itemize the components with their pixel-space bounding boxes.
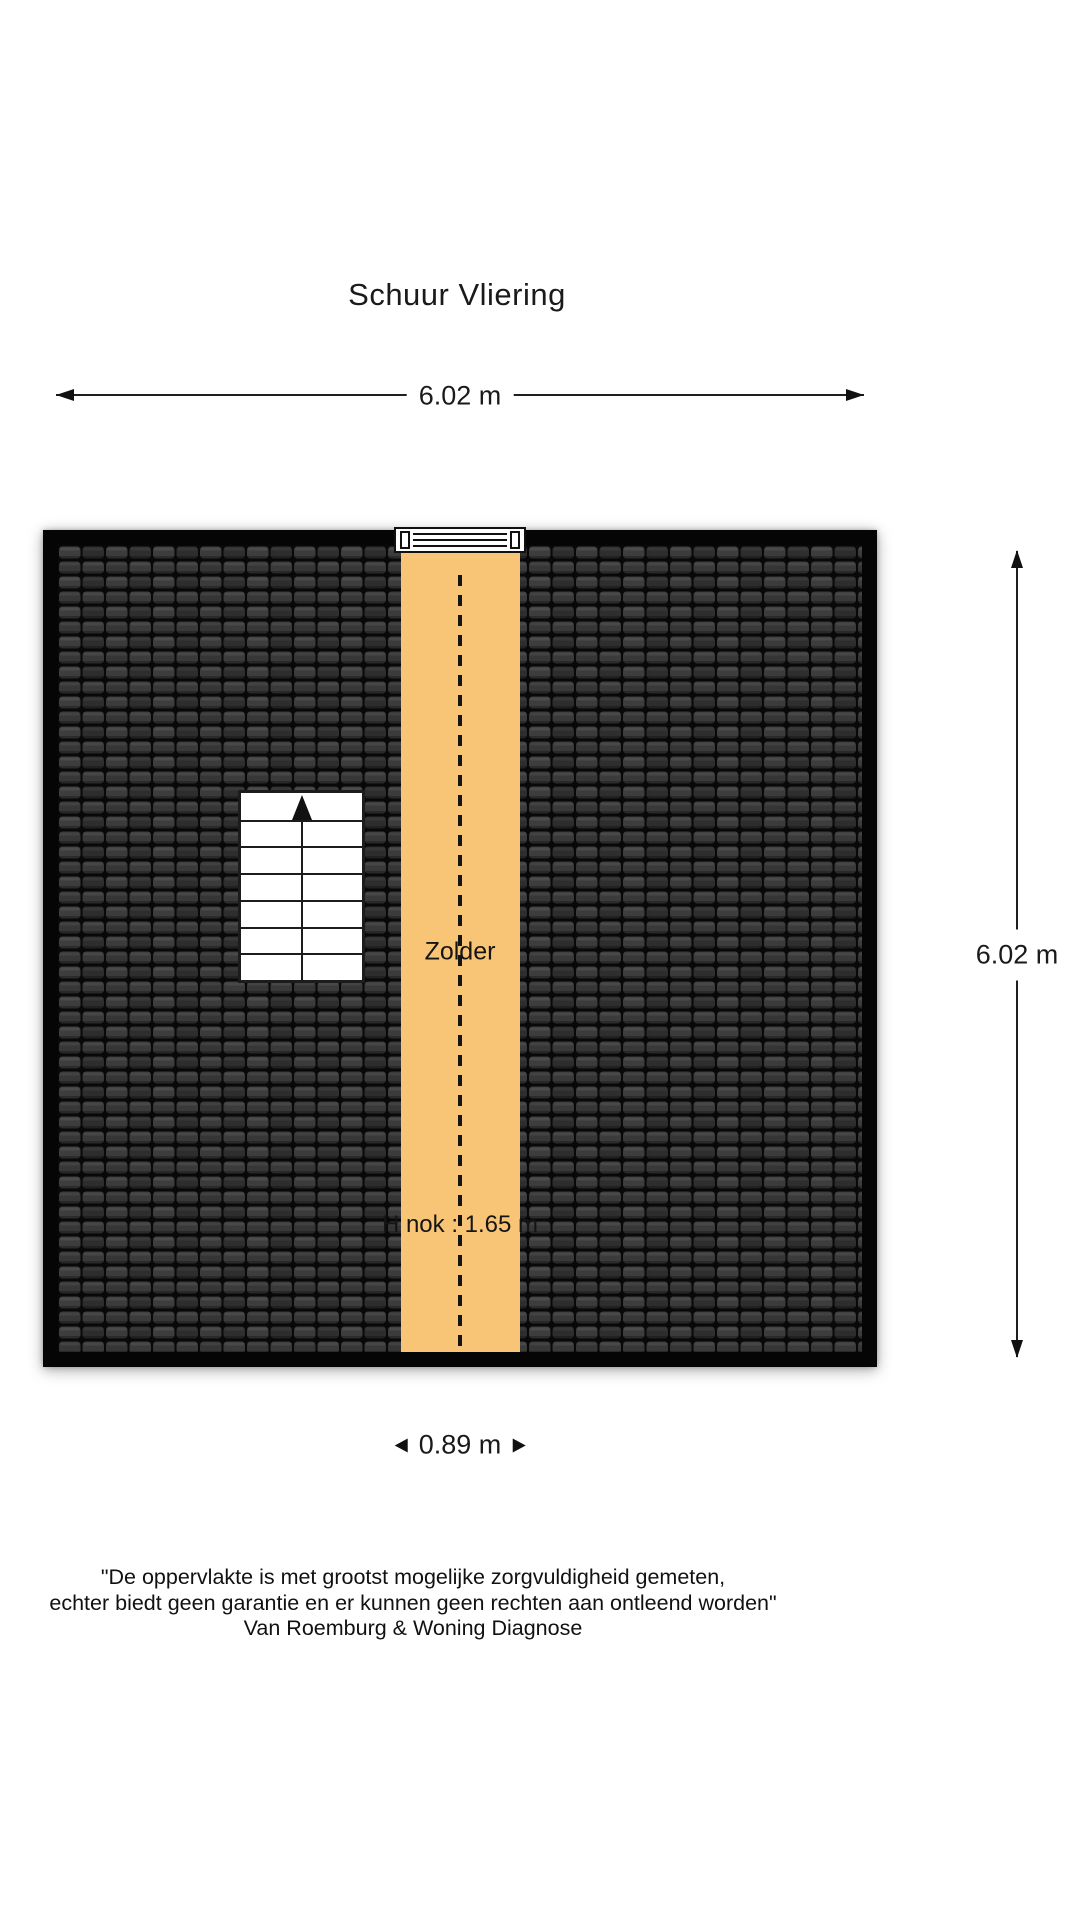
arrow-up-icon [1011, 550, 1023, 568]
hatch-post-right [510, 531, 520, 549]
roof-hatch [394, 527, 526, 553]
dimension-top-label: 6.02 m [407, 381, 514, 412]
disclaimer-line-1: "De oppervlakte is met grootst mogelijke… [49, 1565, 776, 1591]
hatch-post-left [400, 531, 410, 549]
arrow-right-icon [512, 1438, 525, 1452]
arrow-down-icon [1011, 1340, 1023, 1358]
stair-direction-arrow-icon [292, 795, 312, 820]
arrow-left-icon [56, 389, 74, 401]
page-title: Schuur Vliering [348, 277, 566, 313]
dimension-right-label: 6.02 m [972, 930, 1063, 981]
disclaimer-line-2: echter biedt geen garantie en er kunnen … [49, 1591, 776, 1617]
staircase [238, 790, 365, 983]
disclaimer-line-3: Van Roemburg & Woning Diagnose [49, 1616, 776, 1642]
floor-plan: Zolder H nok : 1.65 m [43, 530, 877, 1367]
arrow-right-icon [846, 389, 864, 401]
ridge-height-label: H nok : 1.65 m [382, 1211, 538, 1239]
hatch-glazing-line [413, 545, 507, 547]
disclaimer: "De oppervlakte is met grootst mogelijke… [49, 1565, 776, 1642]
dimension-bottom: 0.89 m [395, 1430, 526, 1461]
room-label: Zolder [425, 938, 496, 967]
arrow-left-icon [395, 1438, 408, 1452]
floorplan-page: Schuur Vliering 6.02 m [0, 0, 1080, 1920]
hatch-glazing-line [413, 533, 507, 535]
stair-center-line [301, 820, 303, 980]
hatch-glazing-line [413, 539, 507, 541]
dimension-bottom-label: 0.89 m [419, 1430, 502, 1461]
